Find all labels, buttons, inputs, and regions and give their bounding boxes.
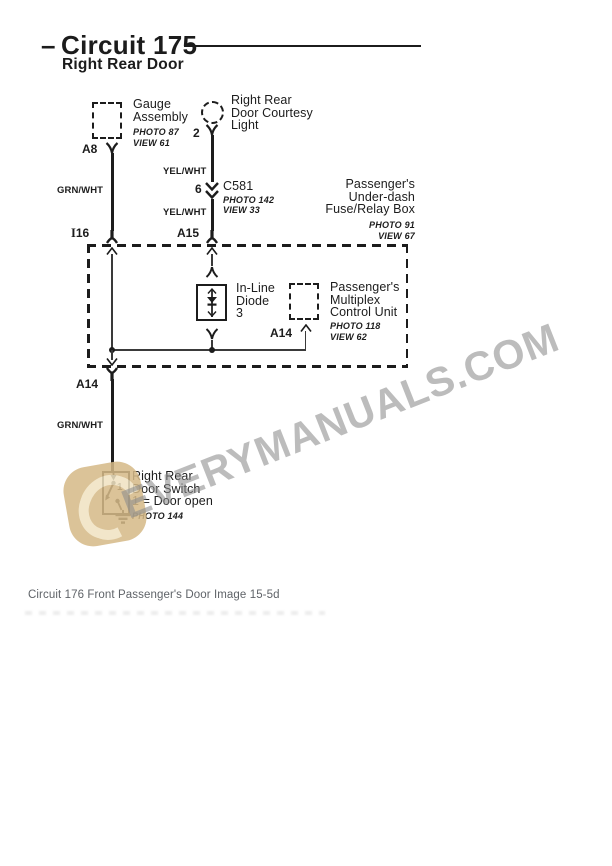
terminal-icon: [104, 230, 120, 244]
page-subtitle: Right Rear Door: [62, 56, 184, 74]
arrow-up-icon: [300, 324, 312, 332]
c581-photo-note: PHOTO 142: [223, 195, 274, 206]
c581-label: C581 PHOTO 142 VIEW 33: [223, 180, 274, 216]
wire-grn-wht-upper: [111, 153, 114, 231]
inline-diode-label: In-Line Diode 3: [236, 282, 275, 320]
fuse-box-edge-left: [87, 244, 90, 367]
wire-yel-wht-lower: [211, 199, 214, 231]
manual-page: – Circuit 175 Right Rear Door Gauge Asse…: [0, 0, 612, 866]
internal-wire-multiplex: [305, 331, 307, 350]
gauge-view-note: VIEW 61: [133, 138, 188, 149]
gauge-photo-note: PHOTO 87: [133, 127, 188, 138]
terminal-icon: [204, 230, 220, 244]
pin-2: 2: [193, 126, 200, 140]
title-dash: –: [41, 30, 56, 61]
title-rule: [184, 45, 421, 47]
internal-wire-left: [111, 254, 113, 350]
fuse-box-edge-right: [406, 244, 409, 367]
arrow-up-icon: [207, 288, 217, 294]
wire-label-grn-wht-upper: GRN/WHT: [57, 185, 103, 198]
courtesy-light-icon: [201, 101, 224, 124]
connector-fork-icon: [205, 266, 219, 278]
internal-wire-diode-top: [211, 254, 213, 266]
watermark-text: EVERYMANUALS.COM: [115, 314, 565, 528]
fuse-box-edge-bottom: [87, 365, 408, 368]
wire-label-grn-wht-lower: GRN/WHT: [57, 420, 103, 433]
junction-dot: [209, 347, 215, 353]
courtesy-light-label: Right Rear Door Courtesy Light: [231, 94, 313, 132]
pin-a14-multiplex: A14: [270, 326, 292, 340]
pin-a15: A15: [177, 226, 199, 240]
light-line3: Light: [231, 119, 313, 132]
multiplex-view-note: VIEW 62: [330, 332, 400, 343]
pin-16-number: 16: [76, 226, 89, 240]
arrow-down-icon: [207, 311, 217, 317]
wire-grn-wht-lower: [111, 379, 114, 472]
diode-line3: 3: [236, 307, 275, 320]
multiplex-photo-note: PHOTO 118: [330, 321, 400, 332]
multiplex-line1: Passenger's: [330, 281, 400, 294]
connector-fork-icon: [205, 328, 219, 340]
fusebox-line1: Passenger's: [300, 178, 415, 191]
pin-16: I16: [71, 226, 89, 241]
multiplex-unit-label: Passenger's Multiplex Control Unit PHOTO…: [330, 281, 400, 342]
c581-name: C581: [223, 180, 274, 193]
multiplex-line3: Control Unit: [330, 306, 400, 319]
diode-line1: In-Line: [236, 282, 275, 295]
pin-a8: A8: [82, 142, 97, 156]
diode-icon: [205, 296, 219, 307]
fusebox-view-note: VIEW 67: [300, 231, 415, 242]
multiplex-unit-box: [289, 283, 319, 320]
fusebox-line3: Fuse/Relay Box: [300, 203, 415, 216]
light-line1: Right Rear: [231, 94, 313, 107]
inline-connector-icon: [204, 182, 220, 199]
pin-6: 6: [195, 182, 202, 196]
fuse-box-edge-top: [87, 244, 408, 247]
gauge-assembly-box: [92, 102, 122, 139]
gauge-line1: Gauge: [133, 98, 188, 111]
scan-artifact: [25, 611, 325, 615]
fuse-relay-box-label: Passenger's Under-dash Fuse/Relay Box PH…: [300, 178, 415, 241]
gauge-assembly-label: Gauge Assembly PHOTO 87 VIEW 61: [133, 98, 188, 149]
c581-view-note: VIEW 33: [223, 205, 274, 216]
arrow-down-icon: [106, 358, 118, 366]
pin-a14-out: A14: [76, 377, 98, 391]
wire-yel-wht-upper: [211, 135, 214, 182]
figure-caption: Circuit 176 Front Passenger's Door Image…: [28, 589, 280, 601]
wire-label-yel-wht-upper: YEL/WHT: [163, 166, 206, 179]
fusebox-photo-note: PHOTO 91: [300, 220, 415, 231]
gauge-line2: Assembly: [133, 111, 188, 124]
wire-label-yel-wht-lower: YEL/WHT: [163, 207, 206, 220]
